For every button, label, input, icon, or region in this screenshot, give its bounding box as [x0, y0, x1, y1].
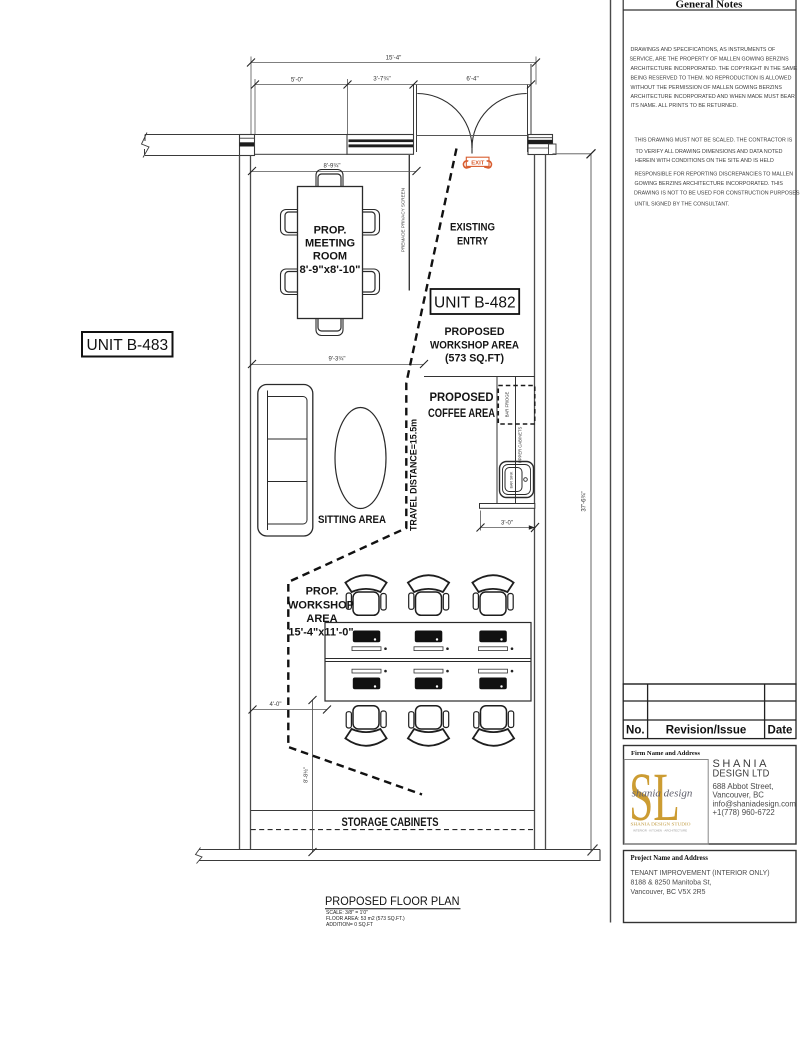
- svg-text:ITS NAME. ALL PRINTS TO BE RE: ITS NAME. ALL PRINTS TO BE RETURNED.: [631, 103, 738, 109]
- svg-text:PROPOSED: PROPOSED: [445, 326, 505, 338]
- svg-text:8'-8½": 8'-8½": [303, 767, 310, 783]
- svg-text:shania design: shania design: [632, 788, 693, 800]
- svg-text:3'-0": 3'-0": [501, 521, 513, 527]
- svg-text:PROPOSED: PROPOSED: [430, 392, 494, 404]
- svg-text:RESPONSIBLE FOR REPORTING DISC: RESPONSIBLE FOR REPORTING DISCREPANCIES …: [635, 171, 794, 177]
- svg-text:8188 & 8250 Manitoba St,: 8188 & 8250 Manitoba St,: [631, 878, 712, 887]
- svg-text:INTERIOR · KITCHEN · ARCHI: INTERIOR · KITCHEN · ARCHITECTURE: [633, 828, 687, 832]
- svg-text:General Notes: General Notes: [676, 0, 744, 11]
- svg-text:PROPOSED FLOOR PLAN: PROPOSED FLOOR PLAN: [325, 894, 460, 908]
- svg-text:TRAVEL DISTANCE=15.5m: TRAVEL DISTANCE=15.5m: [409, 419, 420, 531]
- svg-text:5'-0": 5'-0": [291, 77, 303, 84]
- svg-text:Vancouver, BC V5X 2R5: Vancouver, BC V5X 2R5: [631, 887, 706, 896]
- svg-text:COFFEE AREA: COFFEE AREA: [428, 408, 495, 420]
- svg-text:Vancouver, BC: Vancouver, BC: [713, 791, 765, 800]
- svg-text:Date: Date: [768, 725, 793, 737]
- svg-text:BAR SINK: BAR SINK: [510, 471, 514, 488]
- svg-text:Revision/Issue: Revision/Issue: [666, 725, 747, 737]
- svg-text:37'-6¾": 37'-6¾": [582, 491, 588, 511]
- svg-text:TO VERIFY ALL DRAWING DIMENSIO: TO VERIFY ALL DRAWING DIMENSIONS AND DAT…: [636, 149, 783, 155]
- svg-text:PREMADE PRIVACY SCREEN: PREMADE PRIVACY SCREEN: [401, 188, 406, 252]
- svg-text:BAR FRIDGE: BAR FRIDGE: [505, 391, 510, 417]
- svg-text:MEETING: MEETING: [305, 238, 355, 250]
- svg-text:BEING RESERVED TO THEM. NO RE: BEING RESERVED TO THEM. NO REPRODUCTION …: [631, 76, 792, 82]
- svg-text:WORKSHOP: WORKSHOP: [288, 600, 354, 612]
- svg-text:TENANT IMPROVEMENT (INTERIOR O: TENANT IMPROVEMENT (INTERIOR ONLY): [631, 868, 770, 877]
- svg-text:Project Name and Address: Project Name and Address: [631, 855, 709, 862]
- svg-text:UNIT B-482: UNIT B-482: [434, 295, 516, 312]
- svg-text:AREA: AREA: [306, 613, 337, 625]
- svg-text:4'-0": 4'-0": [270, 702, 282, 708]
- svg-text:3'-7¾": 3'-7¾": [373, 76, 390, 83]
- svg-text:DRAWINGS AND SPECIFICATIONS, A: DRAWINGS AND SPECIFICATIONS, AS INSTRUME…: [631, 47, 777, 53]
- svg-text:ENTRY: ENTRY: [457, 236, 488, 248]
- svg-text:UPPER CABINETS: UPPER CABINETS: [518, 427, 523, 464]
- svg-text:PROP.: PROP.: [306, 586, 339, 598]
- svg-text:8'-9"x8'-10": 8'-9"x8'-10": [300, 264, 361, 276]
- svg-text:WORKSHOP AREA: WORKSHOP AREA: [430, 340, 519, 352]
- svg-text:UNTIL SIGNED BY THE CONSULTANT: UNTIL SIGNED BY THE CONSULTANT.: [635, 202, 730, 208]
- svg-text:DRAWING IS NOT TO BE USED FOR: DRAWING IS NOT TO BE USED FOR CONSTRUCTI…: [634, 190, 800, 196]
- svg-text:PROP.: PROP.: [314, 225, 347, 237]
- svg-text:GOWING BERZINS ARCHITECTURE IN: GOWING BERZINS ARCHITECTURE INCORPORATED…: [635, 181, 784, 187]
- svg-text:SERVICE, ARE THE PROPERTY OF M: SERVICE, ARE THE PROPERTY OF MALLEN GOWI…: [630, 57, 790, 63]
- svg-text:Firm Name and Address: Firm Name and Address: [631, 750, 700, 757]
- svg-text:+1(778) 960-6722: +1(778) 960-6722: [713, 808, 775, 817]
- svg-text:HEREIN WITH CONDITIONS ON THE: HEREIN WITH CONDITIONS ON THE SITE AND I…: [635, 158, 774, 164]
- svg-text:STORAGE CABINETS: STORAGE CABINETS: [342, 817, 439, 829]
- svg-text:SITTING AREA: SITTING AREA: [318, 514, 386, 526]
- svg-text:EXISTING: EXISTING: [450, 222, 495, 234]
- svg-text:ARCHITECTURE INCORPORATED AND: ARCHITECTURE INCORPORATED AND WHEN MADE …: [631, 94, 795, 100]
- svg-text:6'-4": 6'-4": [466, 76, 478, 83]
- svg-text:ADDITION= 0 SQ.FT: ADDITION= 0 SQ.FT: [326, 922, 373, 928]
- svg-text:ARCHITECTURE INCORPORATED. THE: ARCHITECTURE INCORPORATED. THE COPYRIGHT…: [631, 66, 798, 72]
- svg-text:EXIT: EXIT: [471, 160, 484, 166]
- svg-text:WITHOUT THE PERMISSION OF MALL: WITHOUT THE PERMISSION OF MALLEN GOWING …: [631, 85, 783, 91]
- svg-text:ROOM: ROOM: [313, 251, 347, 263]
- svg-text:SHANIA DESIGN STUDIO: SHANIA DESIGN STUDIO: [631, 822, 692, 827]
- svg-text:9'-3¾": 9'-3¾": [329, 357, 346, 363]
- svg-text:8'-9¾": 8'-9¾": [324, 164, 341, 170]
- svg-text:UNIT B-483: UNIT B-483: [87, 337, 169, 354]
- svg-text:(573 SQ.FT): (573 SQ.FT): [445, 353, 504, 365]
- svg-text:THIS DRAWING MUST NOT BE SCALE: THIS DRAWING MUST NOT BE SCALED. THE CON…: [635, 138, 793, 144]
- svg-text:15'-4": 15'-4": [386, 55, 402, 62]
- svg-text:DESIGN LTD: DESIGN LTD: [713, 768, 770, 780]
- svg-text:No.: No.: [626, 725, 645, 737]
- svg-text:15'-4"x11'-0": 15'-4"x11'-0": [288, 627, 353, 639]
